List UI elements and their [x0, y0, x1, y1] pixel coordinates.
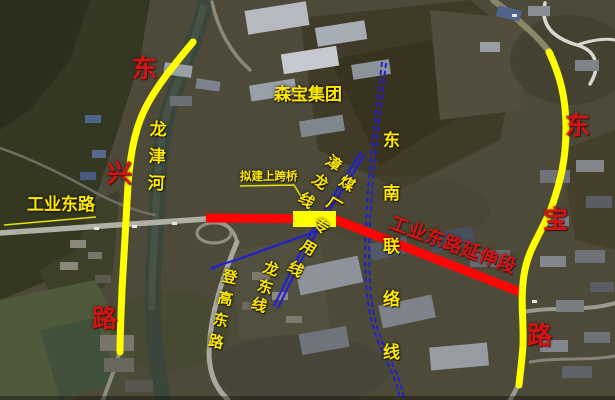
proposed-overpass-label: 拟建上跨桥: [240, 171, 298, 183]
left-road-label-char-3: 路: [92, 306, 117, 331]
left-road-label-char-2: 兴: [107, 161, 132, 186]
industrial-east-road-label: 工业东路: [27, 197, 95, 214]
right-road-label-char-3: 路: [527, 323, 552, 348]
right-road-label-char-2: 宝: [543, 207, 568, 232]
bottom-edge-shadow: [0, 396, 615, 400]
southeast-link-line-label: 东南联络线: [380, 131, 397, 396]
river-label: 龙津河: [144, 120, 164, 202]
right-road-label-char-1: 东: [565, 113, 590, 138]
longdong-line-endpoint: [211, 266, 215, 270]
company-label: 森宝集团: [274, 87, 342, 104]
satellite-map-canvas: 龙津河 森宝集团 工业东路 拟建上跨桥 漳龙线 煤厂专用线 东南联络线 龙东线 …: [0, 0, 615, 400]
left-road-label-char-1: 东: [132, 56, 157, 81]
